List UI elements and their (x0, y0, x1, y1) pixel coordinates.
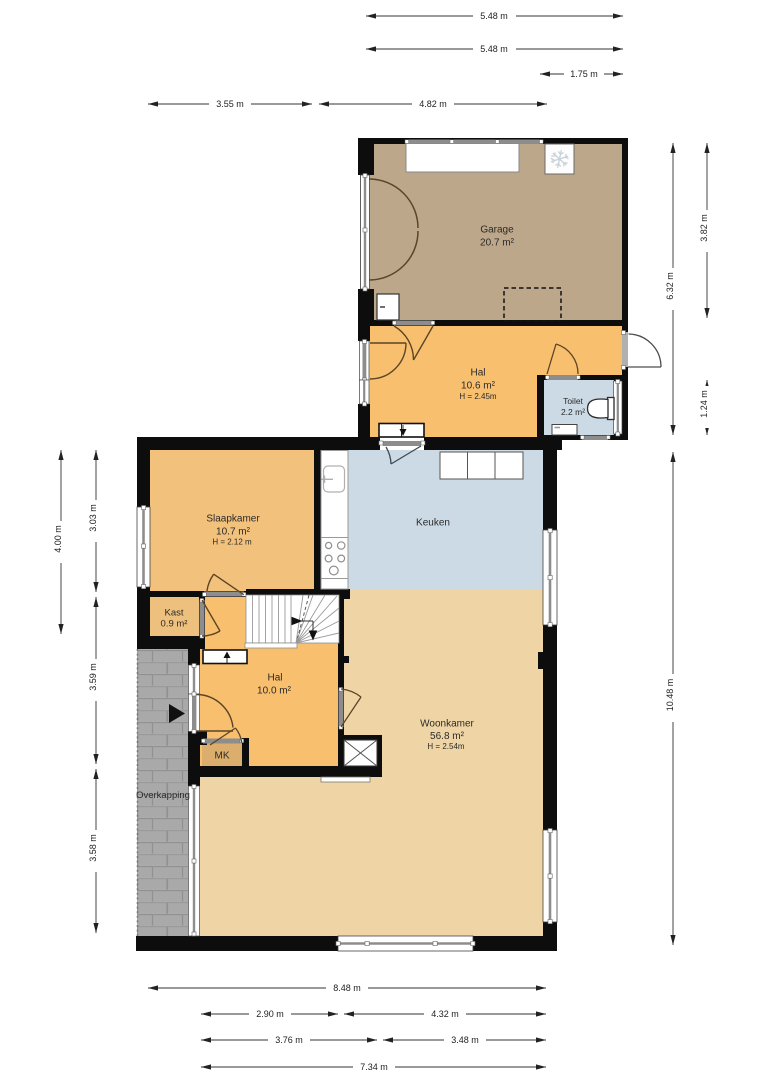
svg-text:Hal: Hal (267, 673, 282, 684)
svg-text:10.0 m²: 10.0 m² (257, 686, 292, 697)
svg-text:H = 2.12 m: H = 2.12 m (212, 538, 252, 547)
svg-text:MK: MK (215, 751, 230, 762)
svg-text:4.00 m: 4.00 m (53, 525, 63, 553)
svg-text:Overkapping: Overkapping (136, 790, 190, 801)
svg-text:20.7 m²: 20.7 m² (480, 238, 515, 249)
svg-text:3.82 m: 3.82 m (699, 214, 709, 242)
svg-text:3.76 m: 3.76 m (275, 1035, 303, 1045)
svg-text:8.48 m: 8.48 m (333, 983, 361, 993)
svg-text:Slaapkamer: Slaapkamer (206, 514, 260, 525)
svg-text:3.58 m: 3.58 m (88, 834, 98, 862)
svg-text:6.32 m: 6.32 m (665, 272, 675, 300)
svg-text:3.59 m: 3.59 m (88, 663, 98, 691)
svg-text:Garage: Garage (480, 225, 514, 236)
svg-text:2.90 m: 2.90 m (256, 1009, 284, 1019)
svg-text:Keuken: Keuken (416, 518, 450, 529)
svg-text:10.7 m²: 10.7 m² (216, 527, 251, 538)
svg-text:5.48 m: 5.48 m (480, 11, 508, 21)
svg-text:Kast: Kast (164, 608, 183, 619)
svg-text:Hal: Hal (470, 368, 485, 379)
svg-text:3.55 m: 3.55 m (216, 99, 244, 109)
svg-text:2.2 m²: 2.2 m² (561, 407, 585, 417)
svg-text:56.8 m²: 56.8 m² (430, 731, 465, 742)
svg-text:5.48 m: 5.48 m (480, 44, 508, 54)
svg-text:H = 2.54m: H = 2.54m (427, 742, 464, 751)
svg-text:0.9 m²: 0.9 m² (161, 619, 188, 630)
svg-text:1.75 m: 1.75 m (570, 69, 598, 79)
svg-text:3.48 m: 3.48 m (451, 1035, 479, 1045)
svg-text:H = 2.45m: H = 2.45m (459, 392, 496, 401)
svg-text:4.82 m: 4.82 m (419, 99, 447, 109)
svg-text:Toilet: Toilet (563, 396, 583, 406)
svg-text:10.6 m²: 10.6 m² (461, 381, 496, 392)
svg-text:4.32 m: 4.32 m (431, 1009, 459, 1019)
svg-text:3.03 m: 3.03 m (88, 504, 98, 532)
svg-text:7.34 m: 7.34 m (360, 1062, 388, 1072)
svg-text:Woonkamer: Woonkamer (420, 719, 474, 730)
svg-text:10.48 m: 10.48 m (665, 679, 675, 712)
svg-text:1.24 m: 1.24 m (699, 390, 709, 418)
